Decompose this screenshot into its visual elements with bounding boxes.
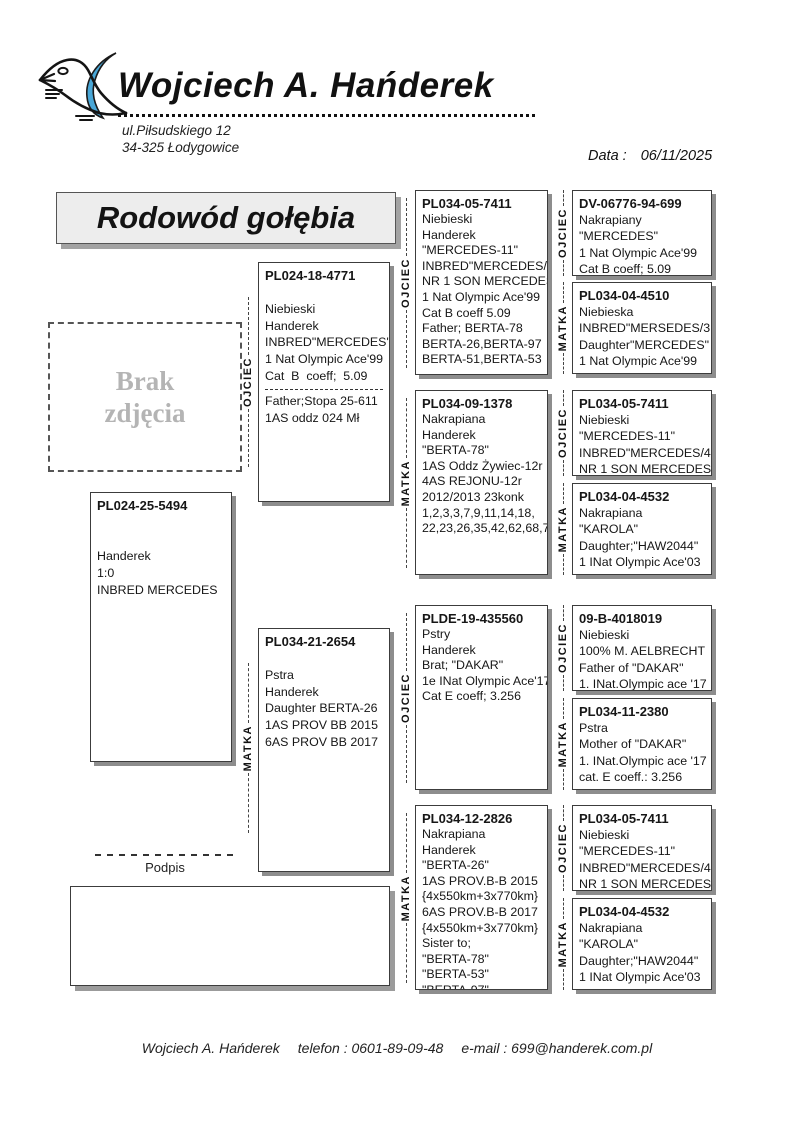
pedigree-box-g3-2: PL034-09-1378NakrapianaHanderek"BERTA-78… — [415, 390, 548, 575]
header-dotted-underline — [118, 114, 536, 117]
pedigree-text-line: NR 1 SON MERCEDES — [579, 876, 705, 891]
father-role-label-g4-7: OJCIEC — [556, 805, 570, 891]
pedigree-text-line: Nakrapiana — [422, 827, 541, 843]
label-dashed-line — [563, 260, 564, 276]
label-dashed-line — [406, 310, 407, 368]
pedigree-text-line: Handerek — [265, 318, 383, 335]
label-dashed-line — [563, 554, 564, 575]
pedigree-text-line: "BERTA-97" — [422, 983, 541, 990]
pedigree-text-line: 1AS PROV.B-B 2015 — [422, 874, 541, 890]
label-dashed-line — [563, 190, 564, 206]
pedigree-box-g2-mother: PL034-21-2654 PstraHanderekDaughter BERT… — [258, 628, 390, 872]
pedigree-box-g3-4: PL034-12-2826NakrapianaHanderek"BERTA-26… — [415, 805, 548, 990]
role-label-text: OJCIEC — [242, 355, 254, 409]
pedigree-document-page: Wojciech A. Hańderek ul.Piłsudskiego 12 … — [0, 0, 794, 1123]
pedigree-text-line: 1 INat Olympic Ace'03 — [579, 969, 705, 985]
pedigree-text-line: Niebieska — [579, 304, 705, 320]
pedigree-text-line: INBRED"MERCEDES/4 — [422, 259, 541, 275]
role-label-text: OJCIEC — [557, 821, 569, 875]
pedigree-text-line: BERTA-51,BERTA-53 — [422, 352, 541, 368]
label-dashed-line — [406, 508, 407, 568]
ring-number: PL034-11-2380 — [579, 703, 705, 720]
pedigree-text-line: 1,2,3,3,7,9,11,14,18, — [422, 506, 541, 522]
pedigree-text-line: BERTA-26,BERTA-97 — [422, 337, 541, 353]
label-dashed-line — [406, 725, 407, 783]
pedigree-box-g3-3: PLDE-19-435560PstryHanderekBrat; "DAKAR"… — [415, 605, 548, 790]
footer-owner-name: Wojciech A. Hańderek — [142, 1040, 280, 1056]
pedigree-text-line: 1 Nat Olympic Ace'99 — [422, 290, 541, 306]
pedigree-text-line: Brat; "DAKAR" — [422, 658, 541, 674]
role-label-text: MATKA — [400, 458, 412, 508]
pedigree-text-line: "KAROLA" — [579, 936, 705, 952]
label-dashed-line — [563, 898, 564, 919]
ring-number: PL034-04-4510 — [579, 287, 705, 304]
pedigree-text-line: "MERCEDES-11" — [579, 843, 705, 859]
ring-number: PL034-09-1378 — [422, 395, 541, 412]
pedigree-text-line: 1. INat.Olympic ace '17 — [579, 753, 705, 769]
pedigree-box-g2-father: PL024-18-4771 NiebieskiHanderekINBRED"ME… — [258, 262, 390, 502]
photo-placeholder-line2: zdjęcia — [105, 397, 186, 429]
pedigree-text-line: "BERTA-53" — [422, 967, 541, 983]
mother-role-label-g4-2: MATKA — [556, 282, 570, 374]
pedigree-text-line: "BERTA-78" — [422, 952, 541, 968]
pedigree-text-line: NR 1 SON MERCEDES — [579, 461, 705, 476]
ring-number: PL034-05-7411 — [422, 195, 541, 212]
role-label-text: MATKA — [557, 719, 569, 769]
pedigree-text-line: 6AS PROV BB 2017 — [265, 734, 383, 751]
pedigree-text-line: Father;Stopa 25-611 — [265, 393, 383, 410]
role-label-text: OJCIEC — [557, 406, 569, 460]
pedigree-text-line: 1 Nat Olympic Ace'99 — [265, 351, 383, 368]
father-role-label-g3-1: OJCIEC — [399, 198, 413, 368]
label-dashed-line — [406, 398, 407, 458]
pedigree-box-g4-2: PL034-04-4510NiebieskaINBRED"MERSEDES/3D… — [572, 282, 712, 374]
role-label-text: OJCIEC — [400, 256, 412, 310]
pedigree-text-line: Niebieski — [265, 301, 383, 318]
ring-number: PL034-21-2654 — [265, 633, 383, 650]
pedigree-text-line: Niebieski — [579, 827, 705, 843]
label-dashed-line — [248, 409, 249, 467]
pedigree-text-line: INBRED"MERCEDES" — [265, 334, 383, 351]
label-dashed-line — [406, 198, 407, 256]
role-label-text: OJCIEC — [400, 671, 412, 725]
signature-dashed-line — [95, 854, 235, 856]
pedigree-text-line: Nakrapiana — [579, 505, 705, 521]
pedigree-text-line: 1e INat Olympic Ace'17 — [422, 674, 541, 690]
pedigree-text-line: 1 INat Olympic Ace'03 — [579, 554, 705, 570]
date-line: Data : 06/11/2025 — [588, 148, 712, 164]
pedigree-text-line: Nakrapiana — [422, 412, 541, 428]
ring-number: 09-B-4018019 — [579, 610, 705, 627]
pedigree-text-line: Daughter;"HAW2044" — [579, 953, 705, 969]
pedigree-text-line: 22,23,26,35,42,62,68,7 — [422, 521, 541, 537]
pedigree-text-line: "KAROLA" — [579, 521, 705, 537]
label-dashed-line — [563, 698, 564, 719]
role-label-text: MATKA — [557, 919, 569, 969]
role-label-text: OJCIEC — [557, 621, 569, 675]
ring-number: PL024-18-4771 — [265, 267, 383, 284]
pedigree-text-line: "BERTA-78" — [422, 443, 541, 459]
pedigree-text-line: 1:0 — [97, 565, 225, 582]
address-line-2: 34-325 Łodygowice — [122, 139, 239, 156]
pedigree-text-line: Niebieski — [579, 627, 705, 643]
ring-number: PL034-04-4532 — [579, 903, 705, 920]
pedigree-text-line: 4AS REJONU-12r — [422, 474, 541, 490]
pedigree-text-line: "MERCEDES" — [579, 228, 705, 244]
owner-address: ul.Piłsudskiego 12 34-325 Łodygowice — [122, 122, 239, 156]
pedigree-box-g4-3: PL034-05-7411Niebieski"MERCEDES-11"INBRE… — [572, 390, 712, 476]
pedigree-text-line: Handerek — [265, 684, 383, 701]
pedigree-text-line: Daughter;"HAW2044" — [579, 538, 705, 554]
document-title: Rodowód gołębia — [97, 200, 355, 236]
label-dashed-line — [406, 813, 407, 873]
pedigree-text-line: "BERTA-26" — [422, 858, 541, 874]
pedigree-text-line: 100% M. AELBRECHT — [579, 643, 705, 659]
pedigree-box-g4-6: PL034-11-2380PstraMother of "DAKAR"1. IN… — [572, 698, 712, 790]
photo-placeholder-line1: Brak — [116, 365, 175, 397]
address-line-1: ul.Piłsudskiego 12 — [122, 122, 239, 139]
pedigree-text-line: "MERCEDES-11" — [422, 243, 541, 259]
pedigree-text-line: 1AS Oddz Żywiec-12r — [422, 459, 541, 475]
pedigree-text-line: Handerek — [97, 548, 225, 565]
father-role-label-g4-1: OJCIEC — [556, 190, 570, 276]
label-dashed-line — [563, 460, 564, 476]
pedigree-text-line: Father of "DAKAR" — [579, 660, 705, 676]
father-role-label-g3-3: OJCIEC — [399, 613, 413, 783]
pedigree-text-line: Nakrapiana — [579, 920, 705, 936]
label-dashed-line — [563, 483, 564, 504]
pedigree-text-line: INBRED"MERSEDES/3 — [579, 320, 705, 336]
label-dashed-line — [563, 605, 564, 621]
father-role-label-g4-3: OJCIEC — [556, 390, 570, 476]
pedigree-text-line: 2012/2013 23konk — [422, 490, 541, 506]
pedigree-text-line: Father; BERTA-78 — [422, 321, 541, 337]
label-dashed-line — [563, 282, 564, 303]
role-label-text: OJCIEC — [557, 206, 569, 260]
pedigree-text-line: Daughter"MERCEDES" — [579, 337, 705, 353]
pedigree-text-line: {4x550km+3x770km} — [422, 889, 541, 905]
pedigree-text-line: Cat B coeff; 5.09 — [265, 368, 383, 385]
pedigree-text-line: Cat B coeff 5.09 — [422, 306, 541, 322]
owner-name: Wojciech A. Hańderek — [118, 66, 678, 106]
pedigree-box-g4-5: 09-B-4018019Niebieski100% M. AELBRECHTFa… — [572, 605, 712, 691]
ring-number: PL034-05-7411 — [579, 810, 705, 827]
pedigree-text-line: Pstra — [265, 667, 383, 684]
label-dashed-line — [563, 675, 564, 691]
pedigree-text-line: INBRED"MERCEDES/4 — [579, 445, 705, 461]
pedigree-text-line: cat. E coeff.: 3.256 — [579, 769, 705, 785]
ring-number: DV-06776-94-699 — [579, 195, 705, 212]
signature-label: Podpis — [95, 860, 235, 875]
pedigree-text-line: Nakrapiany — [579, 212, 705, 228]
pedigree-box-g4-4: PL034-04-4532Nakrapiana"KAROLA"Daughter;… — [572, 483, 712, 575]
pedigree-text-line: 1AS PROV BB 2015 — [265, 717, 383, 734]
pedigree-text-line — [97, 514, 225, 531]
mother-role-label-g4-6: MATKA — [556, 698, 570, 790]
pedigree-text-line: Pstra — [579, 720, 705, 736]
pedigree-text-line: INBRED MERCEDES — [97, 582, 225, 599]
mother-role-label-g2-mother: MATKA — [241, 663, 255, 833]
pedigree-text-line: 1AS oddz 024 Mł — [265, 410, 383, 427]
pedigree-text-line: Mother of "DAKAR" — [579, 736, 705, 752]
photo-placeholder-box: Brak zdjęcia — [48, 322, 242, 472]
pedigree-text-line: 1 Nat Olympic Ace'99 — [579, 353, 705, 369]
pedigree-box-g4-1: DV-06776-94-699Nakrapiany"MERCEDES"1 Nat… — [572, 190, 712, 276]
role-label-text: MATKA — [400, 873, 412, 923]
mother-role-label-g4-8: MATKA — [556, 898, 570, 990]
footer-contact-line: Wojciech A. Hańderek telefon : 0601-89-0… — [0, 1040, 794, 1056]
pedigree-text-line: Handerek — [422, 228, 541, 244]
label-dashed-line — [563, 969, 564, 990]
father-role-label-g2-father: OJCIEC — [241, 297, 255, 467]
date-value: 06/11/2025 — [641, 148, 713, 164]
mother-role-label-g3-2: MATKA — [399, 398, 413, 568]
mother-role-label-g3-4: MATKA — [399, 813, 413, 983]
footer-phone: telefon : 0601-89-09-48 — [298, 1040, 444, 1056]
label-dashed-line — [248, 297, 249, 355]
pedigree-text-line: Handerek — [422, 428, 541, 444]
father-role-label-g4-5: OJCIEC — [556, 605, 570, 691]
pedigree-text-line: INBRED"MERCEDES/4 — [579, 860, 705, 876]
pedigree-box-g3-1: PL034-05-7411NiebieskiHanderek"MERCEDES-… — [415, 190, 548, 375]
ring-number: PLDE-19-435560 — [422, 610, 541, 627]
ring-number: PL034-05-7411 — [579, 395, 705, 412]
pedigree-text-line: Niebieski — [579, 412, 705, 428]
document-title-box: Rodowód gołębia — [56, 192, 396, 244]
role-label-text: MATKA — [242, 723, 254, 773]
pedigree-text-line — [265, 284, 383, 301]
ring-number: PL034-04-4532 — [579, 488, 705, 505]
pedigree-text-line: Niebieski — [422, 212, 541, 228]
pedigree-text-line: 1. INat.Olympic ace '17 — [579, 676, 705, 691]
footer-email: e-mail : 699@handerek.com.pl — [461, 1040, 652, 1056]
pedigree-text-line: Handerek — [422, 643, 541, 659]
pedigree-box-g4-8: PL034-04-4532Nakrapiana"KAROLA"Daughter;… — [572, 898, 712, 990]
role-label-text: MATKA — [557, 303, 569, 353]
label-dashed-line — [563, 390, 564, 406]
pedigree-text-line: Pstry — [422, 627, 541, 643]
pedigree-text-line: Daughter BERTA-26 — [265, 700, 383, 717]
signature-box — [70, 886, 390, 986]
label-dashed-line — [248, 663, 249, 723]
label-dashed-line — [248, 773, 249, 833]
mother-role-label-g4-4: MATKA — [556, 483, 570, 575]
pedigree-text-line: "MERCEDES-11" — [579, 428, 705, 444]
label-dashed-line — [563, 769, 564, 790]
divider-line — [265, 389, 383, 390]
date-label: Data : — [588, 148, 627, 164]
pedigree-text-line: Cat E coeff; 3.256 — [422, 689, 541, 705]
pedigree-text-line: Cat B coeff; 5.09 — [579, 261, 705, 276]
pedigree-box-subject: PL024-25-5494 Handerek1:0INBRED MERCEDES — [90, 492, 232, 762]
pedigree-text-line: 6AS PROV.B-B 2017 — [422, 905, 541, 921]
pedigree-text-line: 1 Nat Olympic Ace'99 — [579, 245, 705, 261]
pedigree-text-line — [265, 650, 383, 667]
pedigree-text-line: Sister to; — [422, 936, 541, 952]
pedigree-text-line — [97, 531, 225, 548]
pedigree-text-line: Handerek — [422, 843, 541, 859]
ring-number: PL034-12-2826 — [422, 810, 541, 827]
pedigree-box-g4-7: PL034-05-7411Niebieski"MERCEDES-11"INBRE… — [572, 805, 712, 891]
pedigree-text-line: NR 1 SON MERCEDES — [422, 274, 541, 290]
label-dashed-line — [563, 875, 564, 891]
role-label-text: MATKA — [557, 504, 569, 554]
ring-number: PL024-25-5494 — [97, 497, 225, 514]
label-dashed-line — [563, 353, 564, 374]
pedigree-text-line: {4x550km+3x770km} — [422, 921, 541, 937]
label-dashed-line — [406, 923, 407, 983]
label-dashed-line — [406, 613, 407, 671]
label-dashed-line — [563, 805, 564, 821]
